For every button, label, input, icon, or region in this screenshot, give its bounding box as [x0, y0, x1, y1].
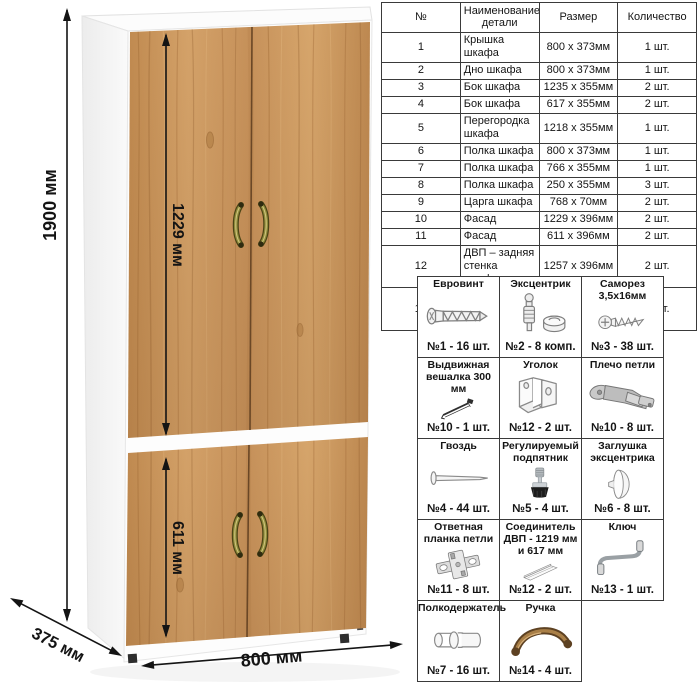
hardware-item-title: Евровинт [417, 277, 500, 291]
part-quantity-cell: 1 шт. [618, 32, 697, 62]
parts-table-row: 4Бок шкафа617 x 355мм2 шт. [382, 96, 697, 113]
part-number-cell: 7 [382, 160, 461, 177]
part-name-cell: Перегородка шкафа [460, 113, 539, 143]
hardware-item-quantity: №5 - 4 шт. [512, 503, 568, 517]
parts-table-row: 10Фасад1229 x 396мм2 шт. [382, 211, 697, 228]
part-number-cell: 4 [382, 96, 461, 113]
hardware-cell: Гвоздь№4 - 44 шт. [418, 439, 500, 520]
part-size-cell: 800 x 373мм [539, 143, 618, 160]
part-size-cell: 250 x 355мм [539, 177, 618, 194]
part-quantity-cell: 1 шт. [618, 113, 697, 143]
shelf-pin-icon [418, 615, 499, 665]
hardware-item-quantity: №2 - 8 комп. [505, 341, 575, 355]
hardware-item: Евровинт№1 - 16 шт. [418, 277, 499, 355]
hardware-item-title: Ключ [581, 520, 664, 534]
lower-door-dimension-label: 611 мм [169, 521, 186, 575]
hardware-grid-row: Полкодержатель№7 - 16 шт.Ручка№14 - 4 шт… [418, 601, 664, 682]
hardware-item-quantity: №12 - 2 шт. [509, 584, 572, 598]
part-number-cell: 5 [382, 113, 461, 143]
hardware-item-title: Выдвижная вешалка 300 мм [417, 358, 500, 395]
self-tapping-screw-icon [582, 303, 663, 342]
hardware-grid-row: Выдвижная вешалка 300 мм№10 - 1 шт.Уголо… [418, 358, 664, 439]
cabinet-side-panel [82, 16, 128, 660]
hardware-item-title: Саморез 3,5х16мм [581, 277, 664, 303]
hardware-item: Ответная планка петли№11 - 8 шт. [418, 520, 499, 598]
part-name-cell: Крышка шкафа [460, 32, 539, 62]
parts-table-row: 1Крышка шкафа800 x 373мм1 шт. [382, 32, 697, 62]
part-quantity-cell: 2 шт. [618, 79, 697, 96]
hardware-item-title: Уголок [499, 358, 582, 372]
part-name-cell: Фасад [460, 228, 539, 245]
column-header-quantity: Количество [618, 3, 697, 33]
part-name-cell: Фасад [460, 211, 539, 228]
nail-icon [418, 453, 499, 503]
part-name-cell: Бок шкафа [460, 79, 539, 96]
part-quantity-cell: 3 шт. [618, 177, 697, 194]
hardware-item-title: Заглушка эксцентрика [581, 439, 664, 465]
part-quantity-cell: 1 шт. [618, 143, 697, 160]
part-size-cell: 1229 x 396мм [539, 211, 618, 228]
hinge-arm-icon [582, 372, 663, 422]
part-quantity-cell: 2 шт. [618, 228, 697, 245]
hdf-connector-icon [500, 557, 581, 584]
hardware-item: Ручка№14 - 4 шт. [500, 601, 581, 679]
hardware-grid-body: Евровинт№1 - 16 шт.Эксцентрик№2 - 8 комп… [418, 277, 664, 682]
hardware-cell: Уголок№12 - 2 шт. [500, 358, 582, 439]
hardware-item-quantity: №10 - 8 шт. [591, 422, 654, 436]
hardware-grid: Евровинт№1 - 16 шт.Эксцентрик№2 - 8 комп… [417, 276, 664, 682]
hardware-item-quantity: №11 - 8 шт. [427, 584, 489, 598]
part-name-cell: Бок шкафа [460, 96, 539, 113]
part-size-cell: 1235 x 355мм [539, 79, 618, 96]
part-name-cell: Полка шкафа [460, 160, 539, 177]
euro-screw-icon [418, 291, 499, 341]
hinge-plate-icon [418, 546, 499, 585]
hardware-item: Соединитель ДВП - 1219 мм и 617 мм№12 - … [500, 520, 581, 598]
hardware-cell: Ручка№14 - 4 шт. [500, 601, 582, 682]
cam-lock-icon [500, 291, 581, 341]
hardware-item-title: Соединитель ДВП - 1219 мм и 617 мм [499, 520, 582, 557]
corner-bracket-icon [500, 372, 581, 422]
parts-table-header-row: № Наименование детали Размер Количество [382, 3, 697, 33]
hardware-item: Плечо петли№10 - 8 шт. [582, 358, 663, 436]
hardware-cell: Заглушка эксцентрика№6 - 8 шт. [582, 439, 664, 520]
part-number-cell: 3 [382, 79, 461, 96]
hardware-item-title: Полкодержатель [417, 601, 500, 615]
hardware-grid-row: Гвоздь№4 - 44 шт.Регулируемый подпятник№… [418, 439, 664, 520]
hardware-grid-row: Евровинт№1 - 16 шт.Эксцентрик№2 - 8 комп… [418, 277, 664, 358]
hardware-item-quantity: №10 - 1 шт. [427, 422, 490, 436]
hardware-cell: Соединитель ДВП - 1219 мм и 617 мм№12 - … [500, 520, 582, 601]
hardware-item-quantity: №12 - 2 шт. [509, 422, 572, 436]
part-size-cell: 617 x 355мм [539, 96, 618, 113]
upper-door-dimension-label: 1229 мм [169, 203, 186, 267]
part-quantity-cell: 2 шт. [618, 194, 697, 211]
parts-table-row: 5Перегородка шкафа1218 x 355мм1 шт. [382, 113, 697, 143]
adjustable-foot-icon [500, 465, 581, 504]
part-name-cell: Полка шкафа [460, 177, 539, 194]
part-size-cell: 1218 x 355мм [539, 113, 618, 143]
hardware-cell: Ответная планка петли№11 - 8 шт. [418, 520, 500, 601]
column-header-part-name: Наименование детали [460, 3, 539, 33]
parts-table-row: 8Полка шкафа250 x 355мм3 шт. [382, 177, 697, 194]
hardware-item-quantity: №13 - 1 шт. [591, 584, 654, 598]
part-quantity-cell: 1 шт. [618, 160, 697, 177]
depth-dimension-label: 375 мм [29, 624, 88, 666]
part-quantity-cell: 2 шт. [618, 96, 697, 113]
part-number-cell: 1 [382, 32, 461, 62]
hardware-item-title: Гвоздь [417, 439, 500, 453]
column-header-number: № [382, 3, 461, 33]
hardware-item-title: Ручка [499, 601, 582, 615]
assembly-instruction-page: 1900 мм 1229 мм 611 мм 800 мм 375 мм № Н… [0, 0, 700, 700]
hardware-item-quantity: №1 - 16 шт. [427, 341, 490, 355]
hardware-cell: Евровинт№1 - 16 шт. [418, 277, 500, 358]
part-number-cell: 2 [382, 62, 461, 79]
hardware-item: Саморез 3,5х16мм№3 - 38 шт. [582, 277, 663, 355]
hardware-cell: Саморез 3,5х16мм№3 - 38 шт. [582, 277, 664, 358]
hardware-item-title: Эксцентрик [499, 277, 582, 291]
parts-table-row: 3Бок шкафа1235 x 355мм2 шт. [382, 79, 697, 96]
hardware-item-title: Регулируемый подпятник [499, 439, 582, 465]
part-number-cell: 8 [382, 177, 461, 194]
part-name-cell: Царга шкафа [460, 194, 539, 211]
height-dimension-label: 1900 мм [40, 169, 60, 241]
parts-table-row: 9Царга шкафа768 x 70мм2 шт. [382, 194, 697, 211]
hardware-item-quantity: №14 - 4 шт. [509, 665, 572, 679]
column-header-size: Размер [539, 3, 618, 33]
part-size-cell: 611 x 396мм [539, 228, 618, 245]
part-number-cell: 10 [382, 211, 461, 228]
hardware-item: Эксцентрик№2 - 8 комп. [500, 277, 581, 355]
hardware-cell: Плечо петли№10 - 8 шт. [582, 358, 664, 439]
parts-table-row: 11Фасад611 x 396мм2 шт. [382, 228, 697, 245]
part-size-cell: 800 x 373мм [539, 62, 618, 79]
part-number-cell: 6 [382, 143, 461, 160]
hardware-item-quantity: №3 - 38 шт. [591, 341, 654, 355]
pull-out-hanger-icon [418, 395, 499, 422]
hardware-cell: Ключ№13 - 1 шт. [582, 520, 664, 601]
hardware-item: Выдвижная вешалка 300 мм№10 - 1 шт. [418, 358, 499, 436]
part-number-cell: 11 [382, 228, 461, 245]
parts-table-row: 6Полка шкафа800 x 373мм1 шт. [382, 143, 697, 160]
part-size-cell: 800 x 373мм [539, 32, 618, 62]
hardware-item: Гвоздь№4 - 44 шт. [418, 439, 499, 517]
hardware-empty-cell [582, 601, 664, 682]
wardrobe-illustration: 1900 мм 1229 мм 611 мм 800 мм 375 мм [0, 0, 415, 700]
hardware-item-quantity: №7 - 16 шт. [427, 665, 490, 679]
hardware-cell: Эксцентрик№2 - 8 комп. [500, 277, 582, 358]
part-number-cell: 9 [382, 194, 461, 211]
hardware-item-quantity: №6 - 8 шт. [594, 503, 650, 517]
hardware-item-title: Ответная планка петли [417, 520, 500, 546]
hardware-cell: Регулируемый подпятник№5 - 4 шт. [500, 439, 582, 520]
hardware-item: Ключ№13 - 1 шт. [582, 520, 663, 598]
hardware-cell: Выдвижная вешалка 300 мм№10 - 1 шт. [418, 358, 500, 439]
part-name-cell: Полка шкафа [460, 143, 539, 160]
hardware-item-title: Плечо петли [581, 358, 664, 372]
parts-table-row: 7Полка шкафа766 x 355мм1 шт. [382, 160, 697, 177]
hex-key-icon [582, 534, 663, 584]
cam-cover-icon [582, 465, 663, 504]
hardware-item: Уголок№12 - 2 шт. [500, 358, 581, 436]
parts-table-row: 2Дно шкафа800 x 373мм1 шт. [382, 62, 697, 79]
handle-icon [500, 615, 581, 665]
part-size-cell: 768 x 70мм [539, 194, 618, 211]
hardware-item-quantity: №4 - 44 шт. [427, 503, 490, 517]
part-quantity-cell: 2 шт. [618, 211, 697, 228]
hardware-item: Заглушка эксцентрика№6 - 8 шт. [582, 439, 663, 517]
hardware-item: Полкодержатель№7 - 16 шт. [418, 601, 499, 679]
hardware-item: Регулируемый подпятник№5 - 4 шт. [500, 439, 581, 517]
part-name-cell: Дно шкафа [460, 62, 539, 79]
hardware-cell: Полкодержатель№7 - 16 шт. [418, 601, 500, 682]
hardware-grid-row: Ответная планка петли№11 - 8 шт.Соединит… [418, 520, 664, 601]
part-size-cell: 766 x 355мм [539, 160, 618, 177]
part-quantity-cell: 1 шт. [618, 62, 697, 79]
